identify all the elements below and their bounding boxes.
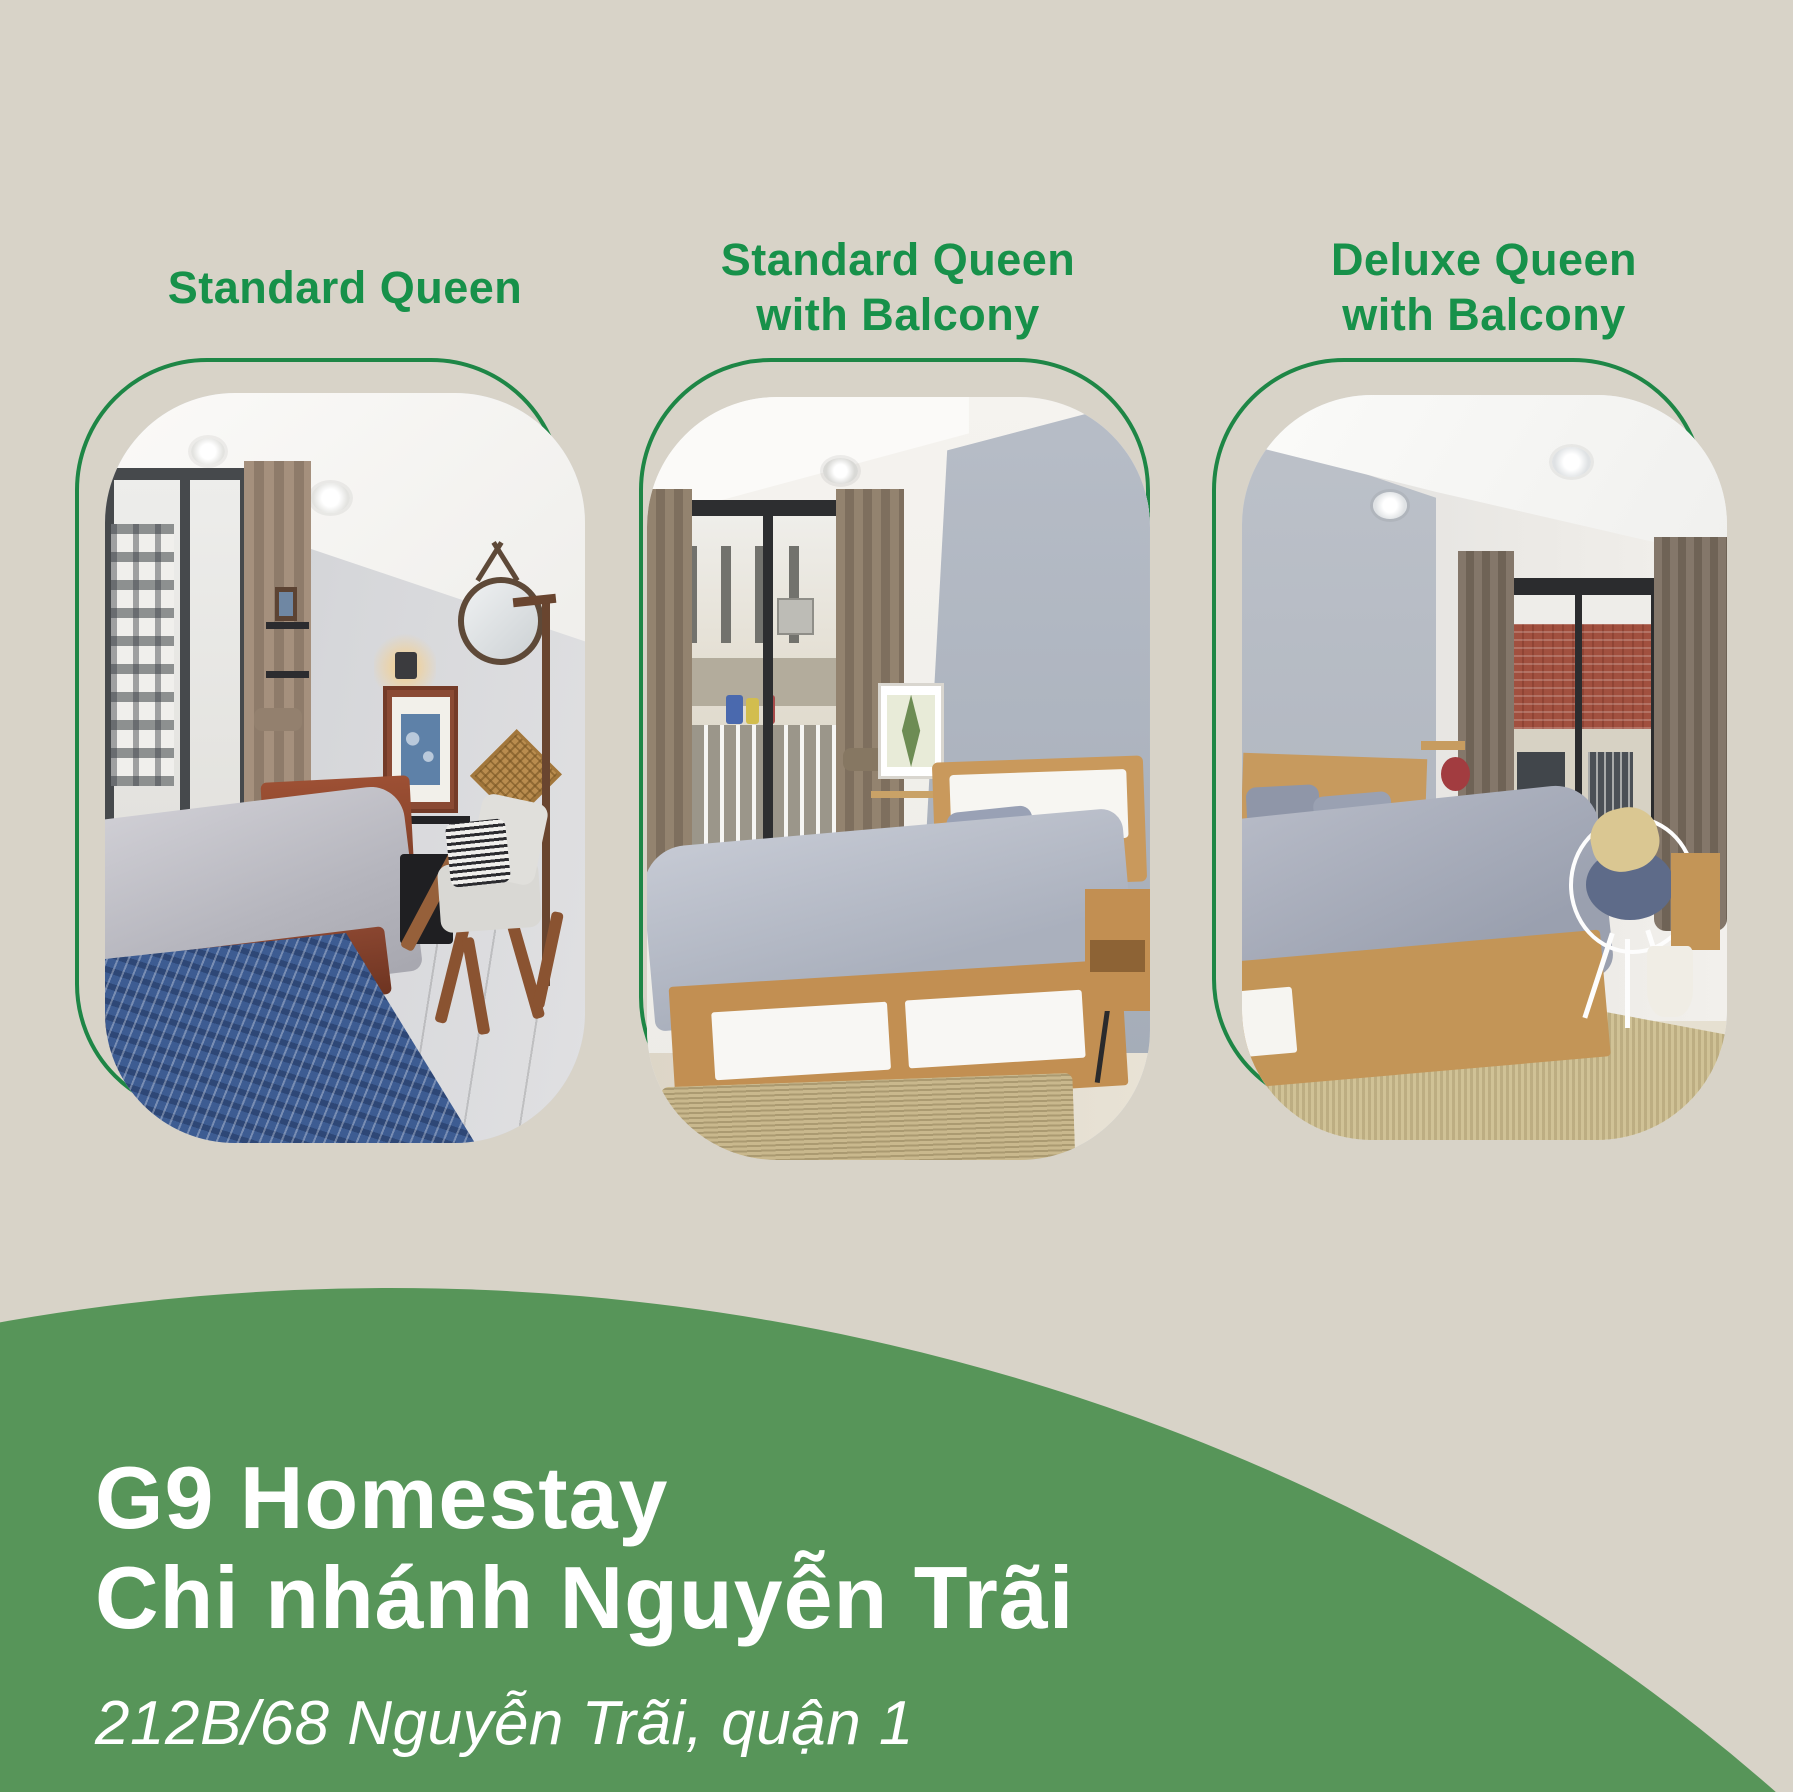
basket [1647,946,1693,1017]
ceiling-light [311,483,349,513]
beige-rug [661,1073,1076,1160]
nightstand [1085,889,1150,1011]
small-picture [279,592,294,616]
room-label-line: with Balcony [756,288,1040,343]
room-type-label: Standard Queen with Balcony [678,222,1118,354]
ceiling-light [191,438,225,465]
room-label-line: Deluxe Queen [1331,233,1637,288]
room-label-line: with Balcony [1342,288,1626,343]
poster-canvas: Standard Queen [0,0,1793,1792]
footer: G9 Homestay Chi nhánh Nguyễn Trãi 212B/6… [95,1448,1074,1759]
nightstand-shelf [1090,940,1145,972]
red-round-decor [1441,757,1470,791]
patterned-pillow [445,818,511,888]
small-picture-frame [275,587,296,622]
room-photo-standard-queen-balcony [647,397,1150,1160]
laundry [726,695,742,725]
art-image [401,714,440,785]
wall-ledge [871,791,936,799]
wall-shelf [1421,741,1465,749]
wood-stool [1671,853,1720,950]
room-photo-deluxe-queen-balcony [1242,395,1727,1140]
window-frame-bar [180,468,190,866]
homestay-title-line2: Chi nhánh Nguyễn Trãi [95,1548,1074,1648]
bed-drawer [1242,987,1297,1058]
laundry [746,698,759,724]
building-outside [111,524,174,786]
ceiling-light [1373,492,1407,519]
corner-shelf [266,671,309,679]
ceiling-light [823,458,858,484]
corner-shelf [266,622,309,630]
ac-unit [777,598,814,635]
homestay-address: 212B/68 Nguyễn Trãi, quận 1 [95,1688,1074,1759]
room-label-line: Standard Queen [168,261,523,316]
room-type-label: Standard Queen [125,222,565,354]
room-photo-standard-queen [105,393,585,1143]
bed-drawer [905,989,1085,1068]
homestay-title-line1: G9 Homestay [95,1448,1074,1548]
bed-drawer [711,1001,891,1080]
round-mirror [458,577,544,666]
curtain-tie [254,708,302,731]
room-type-label: Deluxe Queen with Balcony [1264,222,1704,354]
homestay-title: G9 Homestay Chi nhánh Nguyễn Trãi [95,1448,1074,1648]
room-label-line: Standard Queen [721,233,1076,288]
ceiling-light [1552,447,1591,477]
wall-sconce [395,652,417,679]
